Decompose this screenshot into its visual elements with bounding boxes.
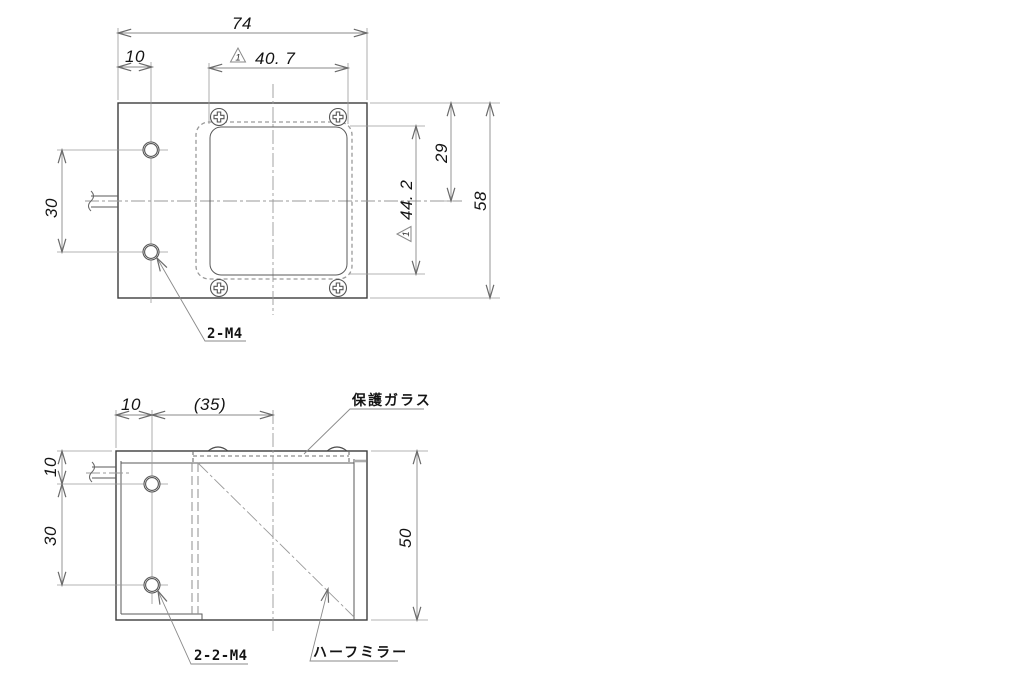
mounting-hole	[144, 577, 160, 593]
side-view: 10 (35) 10 30 50 保護ガラス ハーフ	[41, 392, 432, 664]
dim-top-to-hole-value: 10	[41, 457, 60, 477]
drawing-canvas: 74 10 1 40. 7 29 1 44. 2	[0, 0, 1024, 683]
dim-aperture-width-value: 40. 7	[255, 49, 295, 68]
dim-left-offset: 10	[116, 395, 152, 415]
revision-number: 1	[235, 53, 240, 64]
dim-left-offset: 10	[118, 47, 152, 67]
dim-ref-width-value: (35)	[194, 395, 226, 414]
dim-hole-pitch: 30	[42, 150, 62, 252]
dim-total-height-value: 58	[471, 191, 490, 211]
dim-total-width: 74	[118, 14, 367, 33]
break-symbol	[90, 462, 95, 482]
dim-hole-pitch: 30	[41, 484, 62, 585]
dim-total-height-value: 50	[396, 528, 415, 548]
dim-edge-to-center: 29	[432, 103, 451, 201]
dim-left-offset-value: 10	[125, 47, 145, 66]
top-view-body-outline	[118, 103, 367, 298]
engineering-drawing: 74 10 1 40. 7 29 1 44. 2	[0, 0, 1024, 683]
dim-aperture-width: 1 40. 7	[209, 48, 348, 68]
leader-glass-callout: 保護ガラス	[304, 392, 432, 454]
dim-top-to-hole: 10	[41, 451, 62, 484]
screw-icon	[330, 280, 347, 297]
mounting-hole	[143, 244, 159, 260]
dim-aperture-height: 1 44. 2	[397, 126, 416, 274]
revision-number: 1	[401, 231, 412, 236]
glass-label: 保護ガラス	[351, 392, 432, 408]
dim-left-offset-value: 10	[121, 395, 141, 414]
dim-total-height: 50	[396, 451, 417, 620]
dim-total-width-value: 74	[232, 14, 252, 33]
dim-hole-pitch-value: 30	[41, 526, 60, 546]
dim-hole-pitch-value: 30	[42, 198, 61, 218]
top-view: 74 10 1 40. 7 29 1 44. 2	[42, 14, 500, 342]
screw-icon	[211, 109, 228, 126]
dim-edge-to-center-value: 29	[432, 143, 451, 164]
mirror-label: ハーフミラー	[313, 644, 408, 660]
mounting-hole	[144, 476, 160, 492]
mounting-hole	[143, 142, 159, 158]
dim-ref-width: (35)	[152, 395, 273, 415]
cable-stub	[90, 462, 117, 482]
screw-icon	[211, 280, 228, 297]
dim-aperture-height-value: 44. 2	[397, 180, 416, 220]
screw-icon	[330, 109, 347, 126]
thread-label: 2-M4	[207, 326, 243, 342]
dim-total-height: 58	[471, 103, 490, 298]
thread-label: 2-2-M4	[194, 648, 248, 664]
